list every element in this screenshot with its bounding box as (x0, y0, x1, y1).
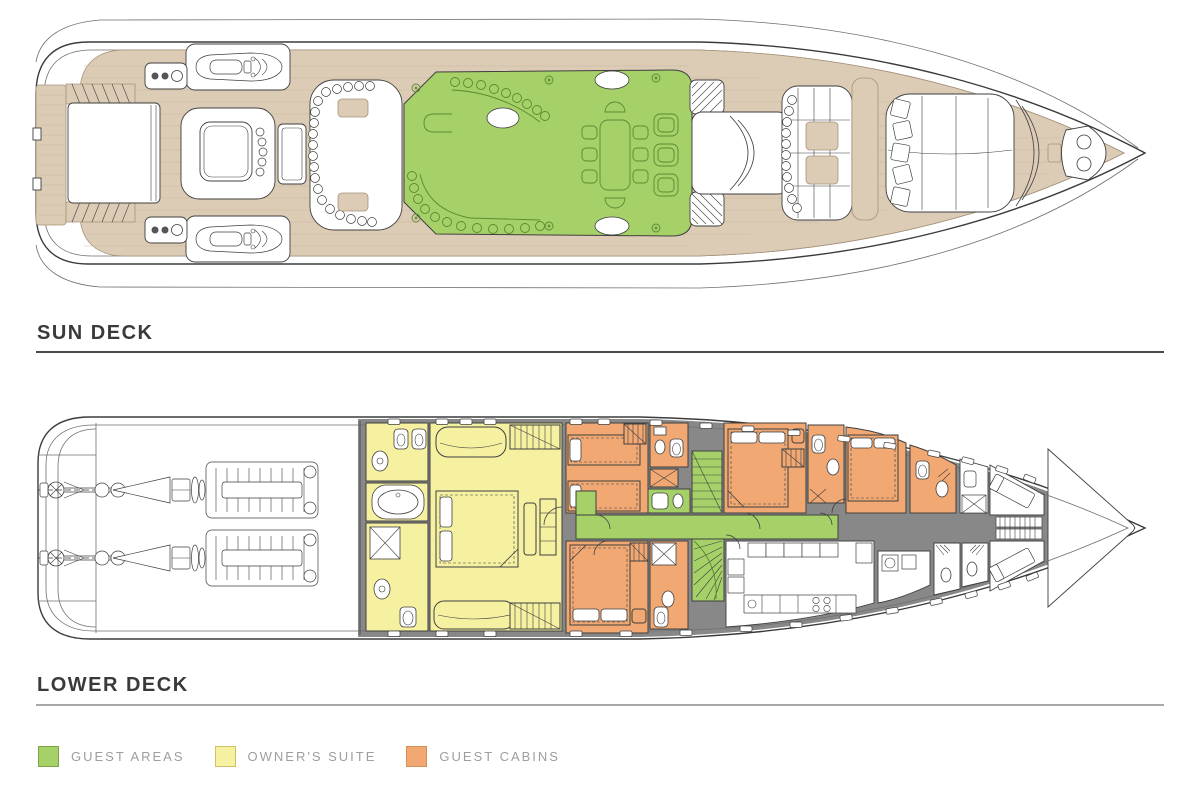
jet-ski-bay-starboard (186, 216, 290, 262)
wardrobe (624, 424, 646, 444)
stairs-top (690, 80, 724, 114)
guest-areas-swatch (38, 746, 59, 767)
sun-deck-divider (36, 351, 1164, 353)
guest-cabin-double-2 (846, 427, 906, 513)
yacht-deck-plans-page: SUN DECK (0, 0, 1200, 808)
guest-areas-label: GUEST AREAS (71, 749, 185, 764)
lounge-table-1 (806, 122, 838, 150)
helm-windshield (692, 112, 788, 194)
owner-bed (436, 491, 518, 567)
owners-suite-swatch (215, 746, 236, 767)
crane-control-panel-bottom (145, 217, 187, 243)
jet-ski-bay-port (186, 44, 290, 90)
sky-lounge-guest-area (404, 70, 692, 236)
ottoman (487, 108, 519, 128)
aft-cockpit-lounge (309, 80, 403, 230)
aft-sunpad (68, 103, 160, 203)
day-head (648, 489, 690, 513)
lower-deck-title: LOWER DECK (37, 674, 189, 697)
corridor-stub (576, 491, 596, 515)
double-bed (570, 545, 630, 625)
lounge-table-2 (806, 156, 838, 184)
guest-cabin-double-1 (724, 423, 806, 513)
corridor (576, 515, 838, 539)
guest-bathroom-4 (650, 541, 688, 629)
crew-bathroom-3 (960, 459, 988, 513)
guest-cabins-label: GUEST CABINS (439, 749, 560, 764)
legend-item-guest-areas: GUEST AREAS (38, 746, 185, 767)
legend-item-guest-cabins: GUEST CABINS (406, 746, 560, 767)
console-divider (852, 78, 878, 220)
owner-wardrobe-top (510, 425, 560, 449)
crew-bathroom-1 (934, 543, 960, 595)
armchairs (654, 114, 678, 196)
nightstand (632, 609, 646, 623)
guest-cabins-swatch (406, 746, 427, 767)
wardrobe (782, 449, 804, 467)
owner-bed-bench (524, 503, 536, 555)
double-bed (728, 429, 788, 507)
crane-control-panel-top (145, 63, 187, 89)
staircase-mid-bottom (692, 539, 724, 601)
stern-platform (33, 85, 66, 225)
legend-item-owners-suite: OWNER'S SUITE (215, 746, 377, 767)
owner-suite (366, 423, 562, 631)
lower-deck-divider (36, 704, 1164, 706)
stairs-bottom (690, 192, 724, 226)
crew-cabin-top (989, 465, 1044, 515)
lower-deck-plan (0, 403, 1200, 653)
crew-cabin-bottom (989, 541, 1044, 591)
owner-sofa (434, 601, 514, 629)
bow-void (1048, 449, 1135, 607)
sun-deck-plan (0, 0, 1200, 310)
wardrobe (630, 543, 648, 561)
owner-dresser (540, 499, 556, 555)
staircase-mid-top (692, 451, 722, 513)
guest-cabin-double-3 (566, 541, 648, 633)
crew-bathroom-2 (962, 543, 988, 587)
owner-wardrobe-bottom (510, 603, 560, 629)
sun-deck-title: SUN DECK (37, 322, 153, 345)
legend: GUEST AREAS OWNER'S SUITE GUEST CABINS (38, 746, 560, 767)
forward-lounge (782, 78, 879, 220)
owners-suite-label: OWNER'S SUITE (248, 749, 377, 764)
